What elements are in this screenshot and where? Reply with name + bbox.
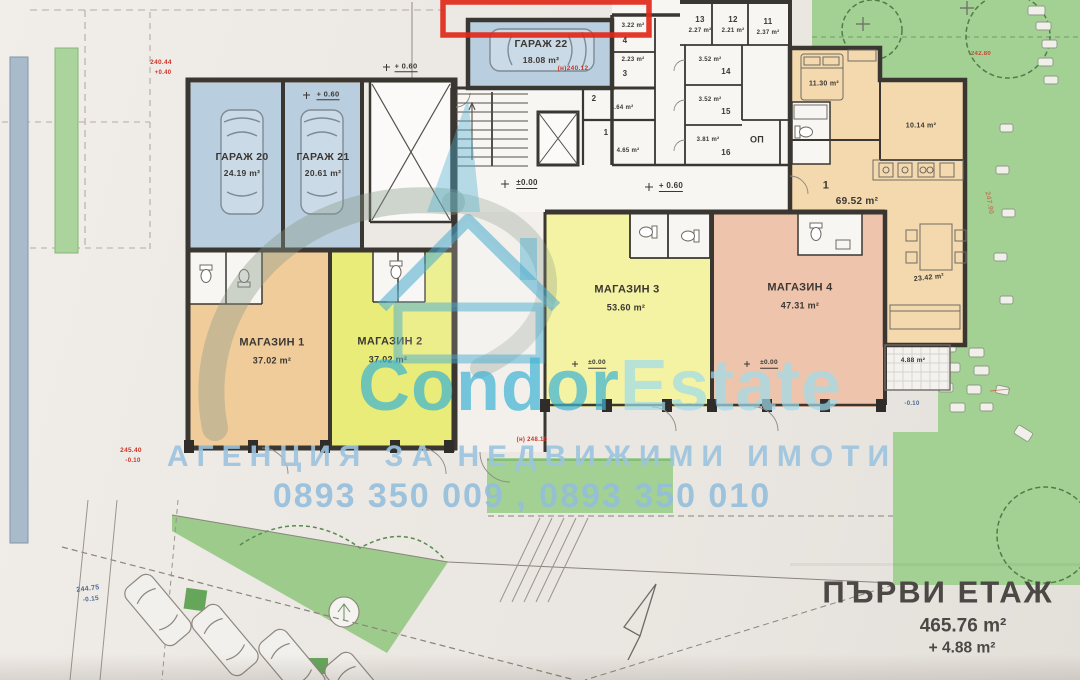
shop4-name: МАГАЗИН 4 (767, 283, 832, 294)
storeroom3-no: 3 (623, 70, 628, 78)
storeroom4-area: 3.22 m² (622, 23, 645, 29)
shop2-area: 37.02 m² (369, 356, 407, 365)
page-title: ПЪРВИ ЕТАЖ (822, 577, 1053, 608)
storeroom14-no: 14 (721, 68, 731, 76)
storeroom15-no: 15 (721, 108, 731, 116)
level-minus10: -0.10 (904, 401, 919, 407)
shop1-name: МАГАЗИН 1 (239, 338, 304, 349)
garage22-area: 18.08 m² (523, 56, 559, 65)
storeroom13-area: 2.27 m² (689, 28, 712, 34)
storeroom11-no: 11 (763, 18, 772, 26)
storeroom1-area: 4.65 m² (617, 148, 640, 154)
elevator (538, 112, 578, 165)
neighbor-wall-strip (10, 57, 28, 543)
elevation-nw2: +0.40 (155, 70, 172, 76)
floor-plan-photo: ГАРАЖ 20 24.19 m² ГАРАЖ 21 20.61 m² + 0.… (0, 0, 1080, 680)
shop1-area: 37.02 m² (253, 357, 291, 366)
elevation-mid: (н) 248.10 (517, 437, 548, 443)
ramp-level: + 0.60 (395, 62, 418, 72)
garage22-name: ГАРАЖ 22 (514, 39, 567, 50)
north-arrow-icon (624, 584, 656, 660)
op-room-label: ОП (750, 136, 764, 145)
shop4-area: 47.31 m² (781, 302, 819, 311)
level-zero: ±0.00 (516, 179, 537, 189)
garage21-area: 20.61 m² (305, 169, 341, 178)
garage21-name: ГАРАЖ 21 (296, 152, 349, 163)
storeroom4-no: 4 (623, 37, 628, 45)
terrace-area: 4.88 m² (901, 358, 926, 365)
garage20-name: ГАРАЖ 20 (215, 152, 268, 163)
storeroom12-no: 12 (728, 16, 738, 24)
storeroom16-area: 3.81 m² (697, 137, 720, 143)
garage22-elevation-note: (н)240.12 (558, 66, 589, 73)
shop3-name: МАГАЗИН 3 (594, 285, 659, 296)
storeroom3-area: 2.23 m² (622, 57, 645, 63)
apartment-area: 69.52 m² (836, 197, 878, 207)
elevation-w2: -0.10 (125, 458, 140, 464)
room-area: 10.14 m² (906, 123, 936, 130)
garage21-level: + 0.60 (317, 90, 340, 100)
storeroom2-area: 4.64 m² (611, 105, 634, 111)
storeroom2-no: 2 (592, 95, 597, 103)
storeroom12-area: 2.21 m² (722, 28, 745, 34)
storeroom15-area: 3.52 m² (699, 97, 722, 103)
shop2-name: МАГАЗИН 2 (357, 337, 422, 348)
elevation-nw: 240.44 (150, 60, 172, 67)
storeroom13-no: 13 (695, 16, 705, 24)
shop3-area: 53.60 m² (607, 304, 645, 313)
apartment-number: 1 (823, 181, 829, 192)
level-zero-shop3: ±0.00 (588, 360, 606, 369)
storeroom16-no: 16 (721, 149, 731, 157)
storeroom14-area: 3.52 m² (699, 57, 722, 63)
storeroom11-area: 2.37 m² (757, 30, 780, 36)
total-area: 465.76 m² (920, 617, 1007, 636)
level-plus60: + 0.60 (659, 182, 683, 192)
elevation-w: 245.40 (120, 448, 142, 455)
elevation-ne: 242.80 (971, 51, 991, 57)
bedroom-area: 11.30 m² (809, 81, 839, 88)
level-zero-shop4: ±0.00 (760, 360, 778, 369)
extra-area: + 4.88 m² (929, 640, 996, 656)
garage20-area: 24.19 m² (224, 169, 260, 178)
storeroom1-no: 1 (604, 129, 609, 137)
